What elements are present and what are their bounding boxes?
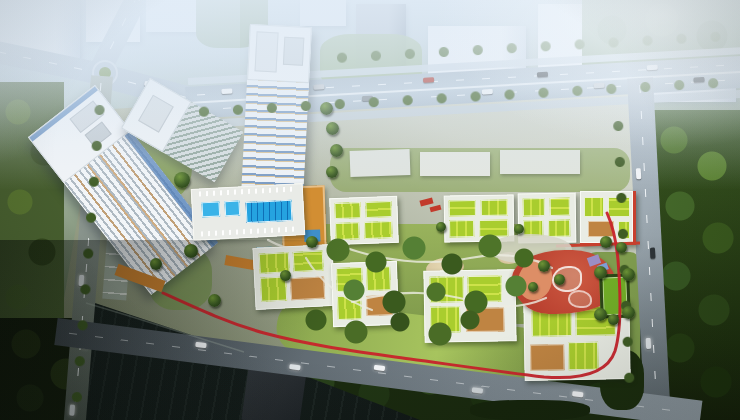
tree — [594, 266, 607, 279]
tree — [600, 236, 612, 248]
tree — [330, 144, 343, 157]
tree — [184, 244, 198, 258]
garden-tree-cluster — [298, 304, 488, 358]
tree — [528, 282, 538, 292]
tree — [436, 222, 446, 232]
tree — [622, 268, 635, 281]
tree — [174, 172, 190, 188]
tree — [554, 274, 565, 285]
lake-shoreline — [86, 303, 244, 352]
aerial-rendering — [0, 0, 740, 420]
tree — [538, 260, 550, 272]
tree — [326, 122, 339, 135]
tree — [306, 236, 318, 248]
tree — [150, 258, 162, 270]
tree — [208, 294, 221, 307]
tree — [326, 166, 338, 178]
tree — [280, 270, 291, 281]
tree — [608, 314, 619, 325]
tree — [320, 102, 333, 115]
tree — [514, 224, 524, 234]
tree — [616, 242, 627, 253]
tree — [622, 306, 635, 319]
tree — [594, 308, 607, 321]
